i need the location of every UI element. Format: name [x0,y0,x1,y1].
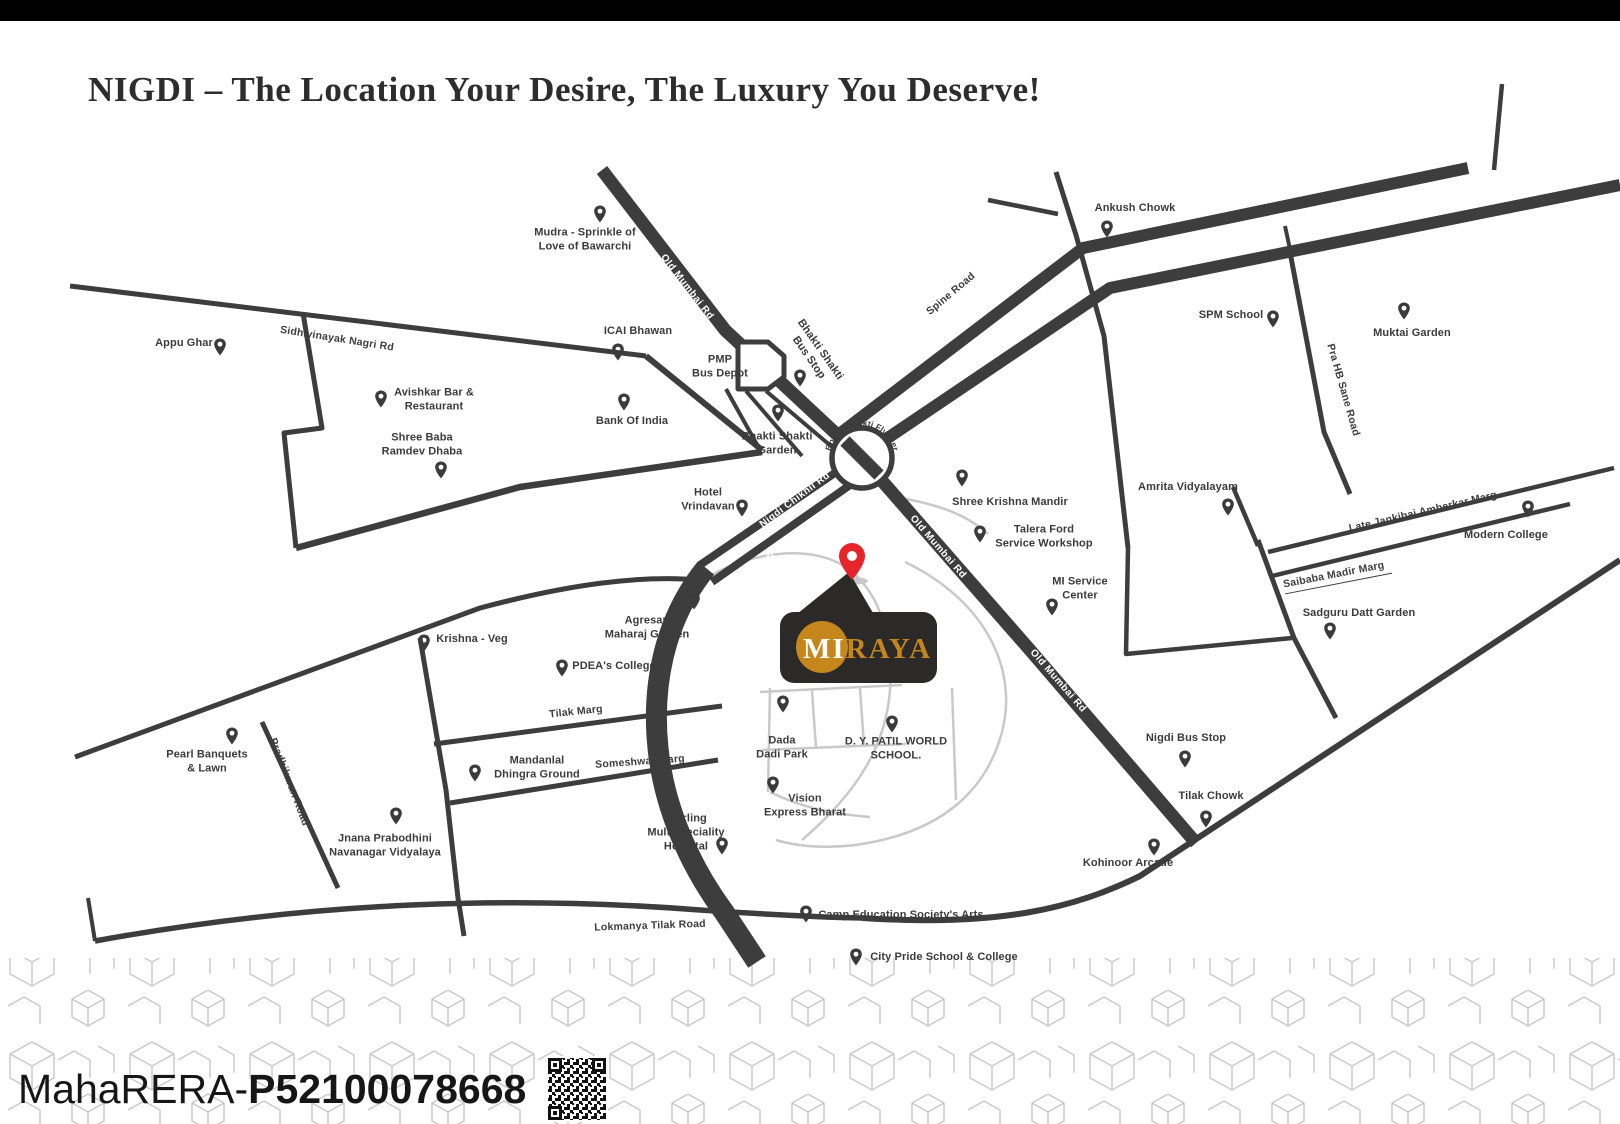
location-pin-icon [800,905,813,923]
poi-bank-of-india: Bank Of India [596,415,668,429]
location-pin-icon [1179,750,1192,768]
poi-nigdi-bus-stop: Nigdi Bus Stop [1146,732,1226,746]
poi-jnana-prabodhini: Jnana Prabodhini Navanagar Vidyalaya [329,832,441,860]
road-label-spine: Spine Road [924,270,978,318]
poi-pearl-banquets: Pearl Banquets & Lawn [166,748,247,776]
poi-sadguru-datt-garden: Sadguru Datt Garden [1303,607,1416,621]
location-pin-icon [777,695,790,713]
poi-bhakti-shakti-bus-stop: Bhakti Shakti Bus Stop [782,317,845,391]
poi-shree-baba-ramdev-dhaba: Shree Baba Ramdev Dhaba [382,431,463,459]
poi-pmp-bus-depot: PMP Bus Depot [692,353,748,381]
location-pin-icon [1222,498,1235,516]
location-pin-icon [794,369,807,387]
road-label-lokmanya: Lokmanya Tilak Road [594,918,706,934]
location-pin-icon [594,205,607,223]
location-pin-icon [850,948,863,966]
road-label-old-mumbai-mid: Old Mumbai Rd [908,513,969,580]
location-pin-icon [618,393,631,411]
road-label-old-mumbai-south: Old Mumbai Rd [1028,647,1089,714]
poi-mi-service-center: MI Service Center [1052,575,1107,603]
location-pin-icon [1522,500,1535,518]
location-pin-icon [1148,838,1161,856]
location-pin-icon [435,461,448,479]
poi-muktai-garden: Muktai Garden [1373,327,1451,341]
location-pin-icon [736,499,749,517]
poi-talera-ford: Talera Ford Service Workshop [995,523,1092,551]
poi-modern-college: Modern College [1464,529,1548,543]
road-label-tilak-marg: Tilak Marg [549,703,604,721]
road-label-pradhikaran: Pradhikaran Road [266,736,311,827]
poi-spm-school: SPM School [1199,309,1264,323]
poi-kohinoor-arcade: Kohinoor Arcade [1083,857,1173,871]
location-pin-icon [886,715,899,733]
location-pin-icon [418,634,431,652]
location-pin-icon [556,659,569,677]
location-pin-icon [612,343,625,361]
poi-icai-bhawan: ICAI Bhawan [604,325,672,339]
location-pin-icon [390,807,403,825]
location-pin-icon [1200,810,1213,828]
poi-appu-ghar: Appu Ghar [155,337,213,351]
road-label-pra-hb-sane: Pra HB Sane Road [1324,342,1362,437]
poi-vision-express-bharat: Vision Express Bharat [764,792,846,820]
location-pin-icon [375,390,388,408]
road-label-someshwar: Someshwar Marg [595,753,685,772]
poi-pdea-college: PDEA's College [572,660,655,674]
road-label-old-mumbai-north: Old Mumbai Rd [658,252,716,322]
rera-number: P52100078668 [248,1066,526,1112]
location-pin-icon [956,469,969,487]
poi-bhakti-shakti-garden: Bhakti Shakti Garden [742,430,813,458]
road-label-sidhivinayak: Sidhivinayak Nagri Rd [279,324,395,354]
location-pin-icon [772,404,785,422]
location-pin-icon [1324,622,1337,640]
location-pin-icon [1398,302,1411,320]
location-pin-icon [469,764,482,782]
poi-mandanlal-dhingra-ground: Mandanlal Dhingra Ground [494,754,580,782]
map-labels: Old Mumbai Rd Old Mumbai Rd Old Mumbai R… [0,0,1620,1124]
location-pin-icon [974,525,987,543]
poi-shree-krishna-mandir: Shree Krishna Mandir [952,496,1068,510]
rera-registration: MahaRERA-P52100078668 [18,1066,526,1113]
rera-prefix: MahaRERA- [18,1066,248,1112]
road-label-saibaba: Saibaba Madir Marg [1282,558,1392,594]
poi-mudra: Mudra - Sprinkle of Love of Bawarchi [534,226,636,254]
poi-camp-education: Camp Education Society's Arts [818,909,983,923]
location-pin-icon [688,592,701,610]
poi-krishna-veg: Krishna - Veg [436,633,508,647]
poi-agresan-maharaj-garden: Agresan Maharaj Garden [605,614,690,642]
poi-ankush-chowk: Ankush Chowk [1095,202,1176,216]
location-pin-icon [214,338,227,356]
poi-dada-dadi-park: Dada Dadi Park [756,734,808,762]
poi-hotel-vrindavan: Hotel Vrindavan [681,486,734,514]
poi-city-pride-school: City Pride School & College [870,951,1018,965]
location-pin-icon [226,727,239,745]
poi-sterling-hospital: Sterling Multispeciality Hospital [647,812,724,853]
location-pin-icon [1267,310,1280,328]
poi-dy-patil-world-school: D. Y. PATIL WORLD SCHOOL. [845,735,947,763]
poi-amrita-vidyalayam: Amrita Vidyalayam [1138,481,1238,495]
location-pin-icon [1101,220,1114,238]
location-map-poster: NIGDI – The Location Your Desire, The Lu… [0,0,1620,1124]
poi-avishkar-bar: Avishkar Bar & Restaurant [394,386,474,414]
poi-tilak-chowk: Tilak Chowk [1178,790,1243,804]
